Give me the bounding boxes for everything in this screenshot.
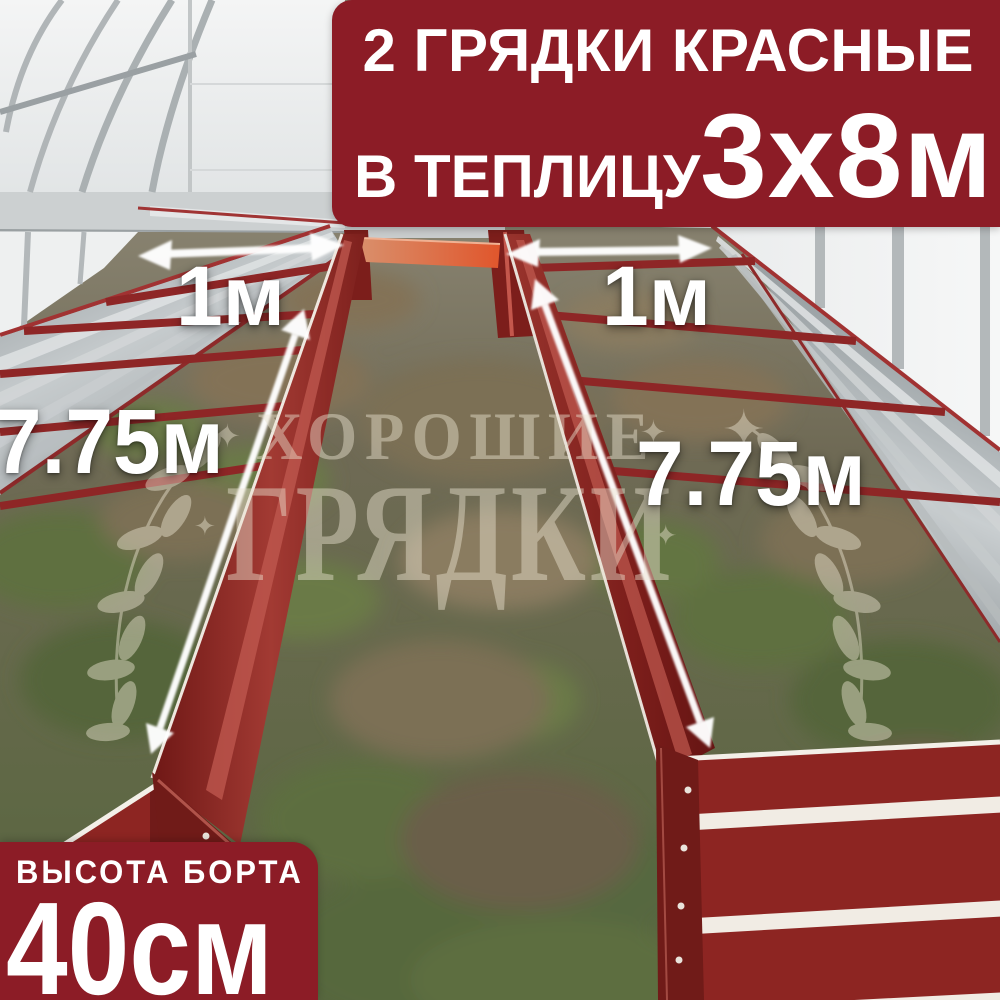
bottom-banner: ВЫСОТА БОРТА 40см	[0, 842, 318, 1000]
top-banner: 2 ГРЯДКИ КРАСНЫЕ В ТЕПЛИЦУ 3х8м	[332, 0, 1000, 227]
dimension-label-right-width: 1м	[602, 254, 711, 338]
greenhouse-arches	[0, 0, 345, 192]
right-bed-end-panel	[650, 735, 1000, 1000]
dimension-label-left-length: 7.75м	[0, 396, 224, 488]
dimension-label-left-width: 1м	[176, 254, 285, 338]
top-banner-subtitle-row: В ТЕПЛИЦУ 3х8м	[354, 108, 980, 211]
top-banner-title: 2 ГРЯДКИ КРАСНЫЕ	[363, 16, 975, 85]
dimension-label-right-length: 7.75м	[636, 428, 866, 520]
top-banner-size-value: 3х8м	[700, 108, 993, 204]
product-image-card: ✦ ✦ ✦ ✦ ✦ ХОРОШИЕ ГРЯДКИ 1м 1м 7.75м 7.7…	[0, 0, 1000, 1000]
bottom-banner-value: 40см	[6, 895, 268, 1000]
top-banner-subtitle: В ТЕПЛИЦУ	[354, 142, 700, 211]
